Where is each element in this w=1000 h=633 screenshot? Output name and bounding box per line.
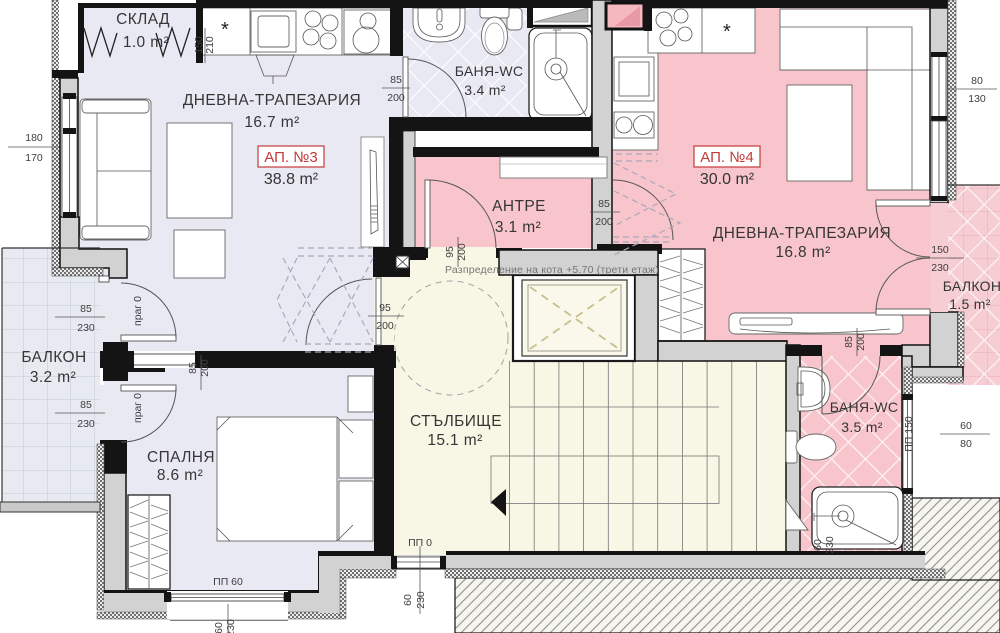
svg-text:БАНЯ-WC: БАНЯ-WC [455,63,524,79]
svg-text:230: 230 [225,619,237,633]
svg-text:230: 230 [931,262,949,274]
svg-text:СТЪЛБИЩЕ: СТЪЛБИЩЕ [410,413,502,430]
svg-text:180: 180 [25,132,43,144]
svg-text:150: 150 [931,244,949,256]
svg-text:95: 95 [379,302,391,314]
svg-text:1.0 m²: 1.0 m² [123,34,169,51]
svg-text:3.1 m²: 3.1 m² [495,219,541,236]
svg-text:80: 80 [960,438,972,450]
svg-text:200: 200 [376,320,394,332]
svg-text:60: 60 [213,622,225,633]
svg-text:30.0 m²: 30.0 m² [700,171,755,188]
svg-text:СКЛАД: СКЛАД [116,11,170,28]
svg-text:85: 85 [598,198,610,210]
svg-text:60: 60 [402,594,414,606]
svg-text:230: 230 [77,418,95,430]
svg-text:230: 230 [415,591,427,609]
svg-text:85: 85 [80,399,92,411]
svg-text:95: 95 [444,246,456,258]
svg-text:170: 170 [25,152,43,164]
svg-text:16.8 m²: 16.8 m² [775,244,830,261]
svg-text:200: 200 [595,216,613,228]
svg-text:СПАЛНЯ: СПАЛНЯ [147,449,215,466]
svg-text:АП. №3: АП. №3 [264,149,317,166]
svg-text:38.8 m²: 38.8 m² [264,171,319,188]
svg-text:16.7 m²: 16.7 m² [244,114,299,131]
svg-text:праг 0: праг 0 [132,296,144,326]
svg-text:АНТРЕ: АНТРЕ [492,198,546,215]
svg-text:ДНЕВНА-ТРАПЕЗАРИЯ: ДНЕВНА-ТРАПЕЗАРИЯ [183,92,361,109]
svg-text:85: 85 [187,362,199,374]
svg-text:60: 60 [960,420,972,432]
svg-text:3.2 m²: 3.2 m² [30,369,76,386]
svg-text:*: * [221,19,229,41]
svg-text:80: 80 [971,75,983,87]
svg-text:230: 230 [824,536,836,554]
svg-text:8.6 m²: 8.6 m² [157,467,203,484]
svg-text:БАЛКОН: БАЛКОН [943,278,1000,294]
svg-text:ПП 150: ПП 150 [903,416,915,452]
svg-text:1.5 m²: 1.5 m² [949,296,991,312]
svg-text:3.4 m²: 3.4 m² [464,82,506,98]
svg-text:85: 85 [843,336,855,348]
svg-text:200: 200 [387,92,405,104]
svg-text:БАЛКОН: БАЛКОН [21,349,86,366]
svg-text:АП. №4: АП. №4 [700,149,753,166]
svg-text:60: 60 [812,539,824,551]
svg-text:15.1 m²: 15.1 m² [427,432,482,449]
svg-text:85: 85 [80,303,92,315]
svg-text:210: 210 [204,36,216,54]
svg-text:3.5 m²: 3.5 m² [841,419,883,435]
svg-text:ПП 60: ПП 60 [213,576,243,588]
svg-text:*: * [723,21,731,43]
svg-text:Разпределение на кота +5.70 (т: Разпределение на кота +5.70 (трети етаж) [445,264,659,276]
svg-text:85: 85 [390,74,402,86]
svg-text:ДНЕВНА-ТРАПЕЗАРИЯ: ДНЕВНА-ТРАПЕЗАРИЯ [713,225,891,242]
svg-text:130: 130 [968,93,986,105]
svg-text:БАНЯ-WC: БАНЯ-WC [830,399,899,415]
svg-text:праг 0: праг 0 [132,393,144,423]
svg-text:230: 230 [77,322,95,334]
